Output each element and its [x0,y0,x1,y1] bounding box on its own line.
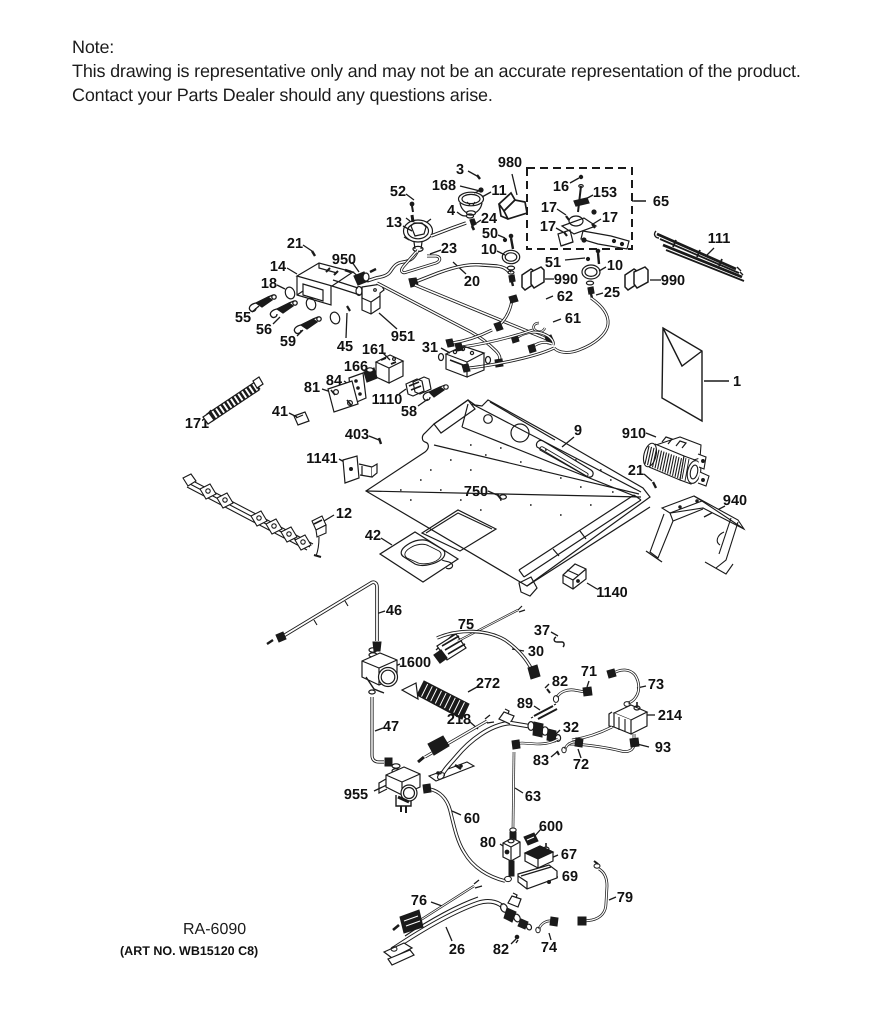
svg-text:23: 23 [441,241,457,257]
svg-text:72: 72 [573,757,589,773]
svg-text:80: 80 [480,835,496,851]
svg-text:17: 17 [541,200,557,216]
svg-text:950: 950 [332,252,356,268]
svg-text:58: 58 [401,404,417,420]
svg-text:14: 14 [270,259,286,275]
svg-text:20: 20 [464,274,480,290]
svg-text:1140: 1140 [596,585,627,601]
svg-text:13: 13 [386,215,402,231]
svg-text:111: 111 [708,231,731,247]
svg-text:21: 21 [628,463,644,479]
svg-text:990: 990 [661,273,685,289]
svg-text:25: 25 [604,285,620,301]
svg-text:61: 61 [565,311,581,327]
svg-text:46: 46 [386,603,402,619]
svg-text:21: 21 [287,236,303,252]
svg-text:1141: 1141 [306,451,337,467]
svg-text:30: 30 [528,644,544,660]
svg-text:56: 56 [256,322,272,338]
svg-text:403: 403 [345,427,369,443]
svg-text:89: 89 [517,696,533,712]
svg-text:62: 62 [557,289,573,305]
svg-text:76: 76 [411,893,427,909]
svg-text:980: 980 [498,155,522,171]
svg-text:10: 10 [607,258,623,274]
svg-text:600: 600 [539,819,563,835]
svg-text:17: 17 [540,219,556,235]
svg-text:11: 11 [491,183,506,199]
svg-text:45: 45 [337,339,353,355]
svg-text:32: 32 [563,720,579,736]
svg-text:67: 67 [561,847,577,863]
svg-text:12: 12 [336,506,352,522]
svg-text:52: 52 [390,184,406,200]
svg-text:31: 31 [422,340,438,356]
svg-text:1: 1 [733,374,741,390]
svg-text:955: 955 [344,787,368,803]
svg-text:Note:: Note: [72,37,114,57]
svg-text:910: 910 [622,426,646,442]
svg-text:71: 71 [581,664,597,680]
svg-text:10: 10 [481,242,497,258]
svg-text:This drawing is representative: This drawing is representative only and … [72,61,801,81]
svg-text:83: 83 [533,753,549,769]
svg-text:63: 63 [525,789,541,805]
svg-text:41: 41 [272,404,288,420]
svg-text:26: 26 [449,942,465,958]
svg-text:50: 50 [482,226,498,242]
svg-text:4: 4 [447,203,455,219]
svg-text:51: 51 [545,255,561,271]
svg-text:750: 750 [464,484,488,500]
svg-text:82: 82 [552,674,568,690]
svg-text:82: 82 [493,942,509,958]
svg-text:990: 990 [554,272,578,288]
svg-text:47: 47 [383,719,399,735]
svg-text:3: 3 [456,162,464,178]
svg-text:16: 16 [553,179,569,195]
svg-text:161: 161 [362,342,386,358]
svg-text:79: 79 [617,890,633,906]
svg-text:17: 17 [602,210,618,226]
svg-text:73: 73 [648,677,664,693]
svg-text:RA-6090: RA-6090 [183,921,246,938]
svg-text:214: 214 [658,708,682,724]
svg-text:153: 153 [593,185,617,201]
svg-text:37: 37 [534,623,550,639]
svg-text:65: 65 [653,194,669,210]
svg-text:59: 59 [280,334,296,350]
svg-text:951: 951 [391,329,415,345]
svg-text:940: 940 [723,493,747,509]
svg-text:(ART NO. WB15120 C8): (ART NO. WB15120 C8) [120,944,258,958]
svg-text:18: 18 [261,276,277,292]
svg-text:1600: 1600 [399,655,431,671]
svg-text:168: 168 [432,178,456,194]
svg-text:1110: 1110 [372,392,403,408]
svg-text:93: 93 [655,740,671,756]
svg-text:60: 60 [464,811,480,827]
svg-text:9: 9 [574,423,582,439]
svg-text:24: 24 [481,211,497,227]
svg-text:74: 74 [541,940,557,956]
svg-text:81: 81 [304,380,320,396]
svg-text:69: 69 [562,869,578,885]
svg-text:Contact your Parts Dealer shou: Contact your Parts Dealer should any que… [72,85,493,105]
svg-text:55: 55 [235,310,251,326]
svg-text:272: 272 [476,676,500,692]
svg-text:42: 42 [365,528,381,544]
